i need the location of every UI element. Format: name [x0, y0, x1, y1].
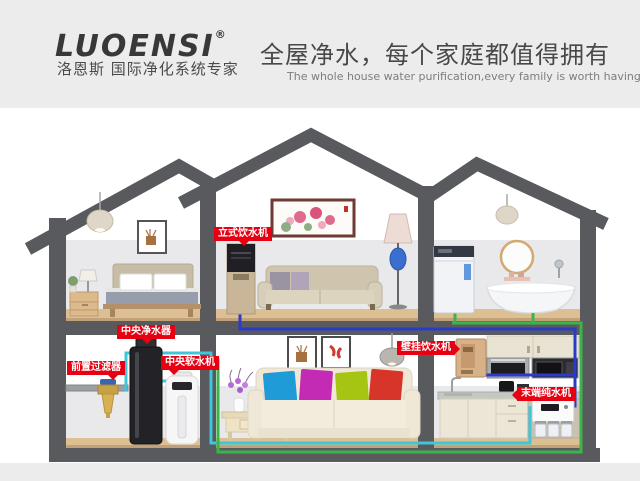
label-terminal-ro-machine: 末端纯水机 [517, 387, 575, 401]
ad-poster: LUOENSI® 洛恩斯 国际净化系统专家 全屋净水，每个家庭都值得拥有 The… [0, 0, 640, 481]
upper-cabinets-icon [487, 336, 579, 358]
deer-picture-small [288, 337, 316, 370]
plant-icon [68, 276, 78, 292]
sink-icon [444, 393, 472, 396]
terminal-ro-machine-device [532, 399, 574, 437]
label-vertical-dispenser: 立式饮水机 [214, 227, 272, 241]
central-water-purifier-device [130, 336, 162, 444]
washing-machine-device [434, 246, 474, 313]
header-bar: LUOENSI® 洛恩斯 国际净化系统专家 全屋净水，每个家庭都值得拥有 The… [0, 0, 640, 108]
koi-picture [322, 337, 350, 368]
nightstand-icon [70, 292, 98, 316]
label-wall-dispenser: 壁挂饮水机 [397, 341, 455, 355]
vertical-water-dispenser-device [227, 244, 255, 314]
headline-subtitle: The whole house water purification,every… [287, 70, 640, 83]
headline-title: 全屋净水，每个家庭都值得拥有 [260, 35, 610, 70]
central-water-softener-device [166, 372, 198, 444]
flower-painting [272, 200, 354, 236]
foundation-bar [49, 448, 600, 462]
white-sofa-colorful-pillows [248, 368, 420, 438]
label-pre-filter: 前置过滤器 [67, 361, 125, 375]
label-central-softener: 中央软水机 [161, 356, 219, 370]
brand-tagline: 洛恩斯 国际净化系统专家 [57, 58, 239, 79]
label-central-purifier: 中央净水器 [117, 325, 175, 339]
water-mains-pipe [66, 385, 128, 391]
deer-picture [138, 221, 166, 253]
beige-sofa-icon [258, 266, 382, 310]
registered-trademark-mark: ® [215, 28, 226, 41]
wall-mounted-dispenser-device [456, 339, 486, 377]
left-wall [49, 218, 66, 462]
